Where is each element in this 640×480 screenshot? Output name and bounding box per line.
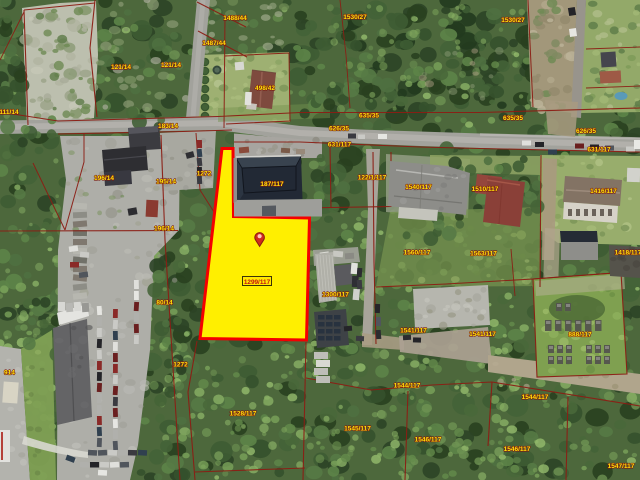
svg-text:1416/117: 1416/117	[590, 188, 617, 195]
svg-text:1544/117: 1544/117	[394, 383, 421, 390]
svg-text:183/14: 183/14	[158, 123, 178, 130]
svg-text:1300/117: 1300/117	[322, 292, 349, 299]
svg-text:1547/117: 1547/117	[608, 463, 635, 470]
svg-text:626/35: 626/35	[329, 126, 349, 133]
svg-text:187/117: 187/117	[260, 181, 284, 188]
svg-text:121/14: 121/14	[161, 62, 181, 69]
svg-text:1546/117: 1546/117	[415, 437, 442, 444]
svg-text:1418/117: 1418/117	[615, 250, 640, 257]
svg-text:1487/44: 1487/44	[202, 40, 226, 47]
svg-text:196/14: 196/14	[94, 175, 114, 182]
svg-text:914: 914	[4, 370, 15, 377]
svg-text:1530/27: 1530/27	[501, 17, 525, 24]
svg-text:1541/117: 1541/117	[400, 328, 427, 335]
svg-text:1272: 1272	[173, 362, 188, 369]
svg-text:631/117: 631/117	[587, 147, 611, 154]
svg-text:121/14: 121/14	[111, 64, 131, 71]
svg-text:631/117: 631/117	[328, 142, 352, 149]
svg-text:1560/117: 1560/117	[404, 250, 431, 257]
svg-text:1545/117: 1545/117	[344, 426, 371, 433]
svg-text:635/35: 635/35	[359, 113, 379, 120]
svg-text:1272: 1272	[197, 171, 212, 178]
svg-text:195/14: 195/14	[156, 179, 176, 186]
svg-text:1563/117: 1563/117	[470, 251, 497, 258]
svg-text:1540/117: 1540/117	[405, 184, 432, 191]
svg-text:1544/117: 1544/117	[522, 394, 549, 401]
svg-text:1299/117: 1299/117	[244, 279, 271, 286]
svg-text:1546/117: 1546/117	[504, 446, 531, 453]
svg-text:626/35: 626/35	[576, 128, 596, 135]
svg-text:1510/117: 1510/117	[472, 186, 499, 193]
svg-text:111/14: 111/14	[0, 109, 19, 116]
svg-text:635/35: 635/35	[503, 115, 523, 122]
svg-text:122/1/117: 122/1/117	[358, 175, 387, 182]
svg-text:80/14: 80/14	[156, 300, 173, 307]
svg-text:1541/117: 1541/117	[469, 331, 496, 338]
svg-text:888/117: 888/117	[568, 332, 592, 339]
svg-text:1528/117: 1528/117	[230, 411, 257, 418]
svg-text:196/14: 196/14	[154, 226, 174, 233]
svg-text:498/42: 498/42	[255, 85, 275, 92]
svg-text:1488/44: 1488/44	[223, 15, 247, 22]
svg-text:1530/27: 1530/27	[343, 14, 367, 21]
